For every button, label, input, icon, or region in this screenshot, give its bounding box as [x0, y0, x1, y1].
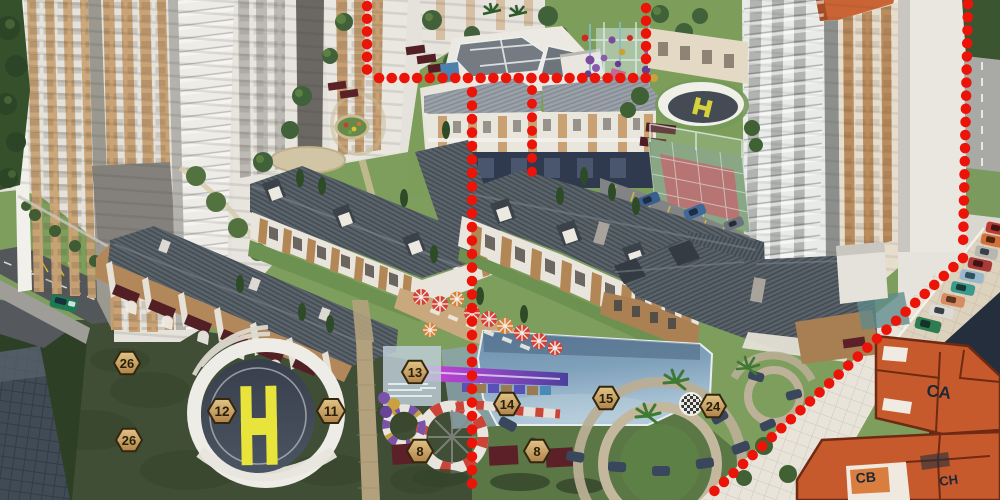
svg-text:CA: CA: [926, 381, 953, 403]
svg-text:CH: CH: [938, 472, 959, 489]
svg-text:13: 13: [408, 365, 422, 380]
svg-text:12: 12: [214, 404, 229, 419]
svg-text:14: 14: [500, 397, 515, 412]
svg-text:8: 8: [416, 444, 423, 459]
svg-text:15: 15: [599, 391, 613, 406]
svg-text:CB: CB: [855, 469, 876, 486]
svg-text:26: 26: [122, 433, 136, 448]
svg-text:11: 11: [324, 404, 339, 419]
svg-text:26: 26: [120, 356, 134, 371]
svg-text:24: 24: [706, 399, 721, 414]
svg-text:8: 8: [533, 444, 540, 459]
